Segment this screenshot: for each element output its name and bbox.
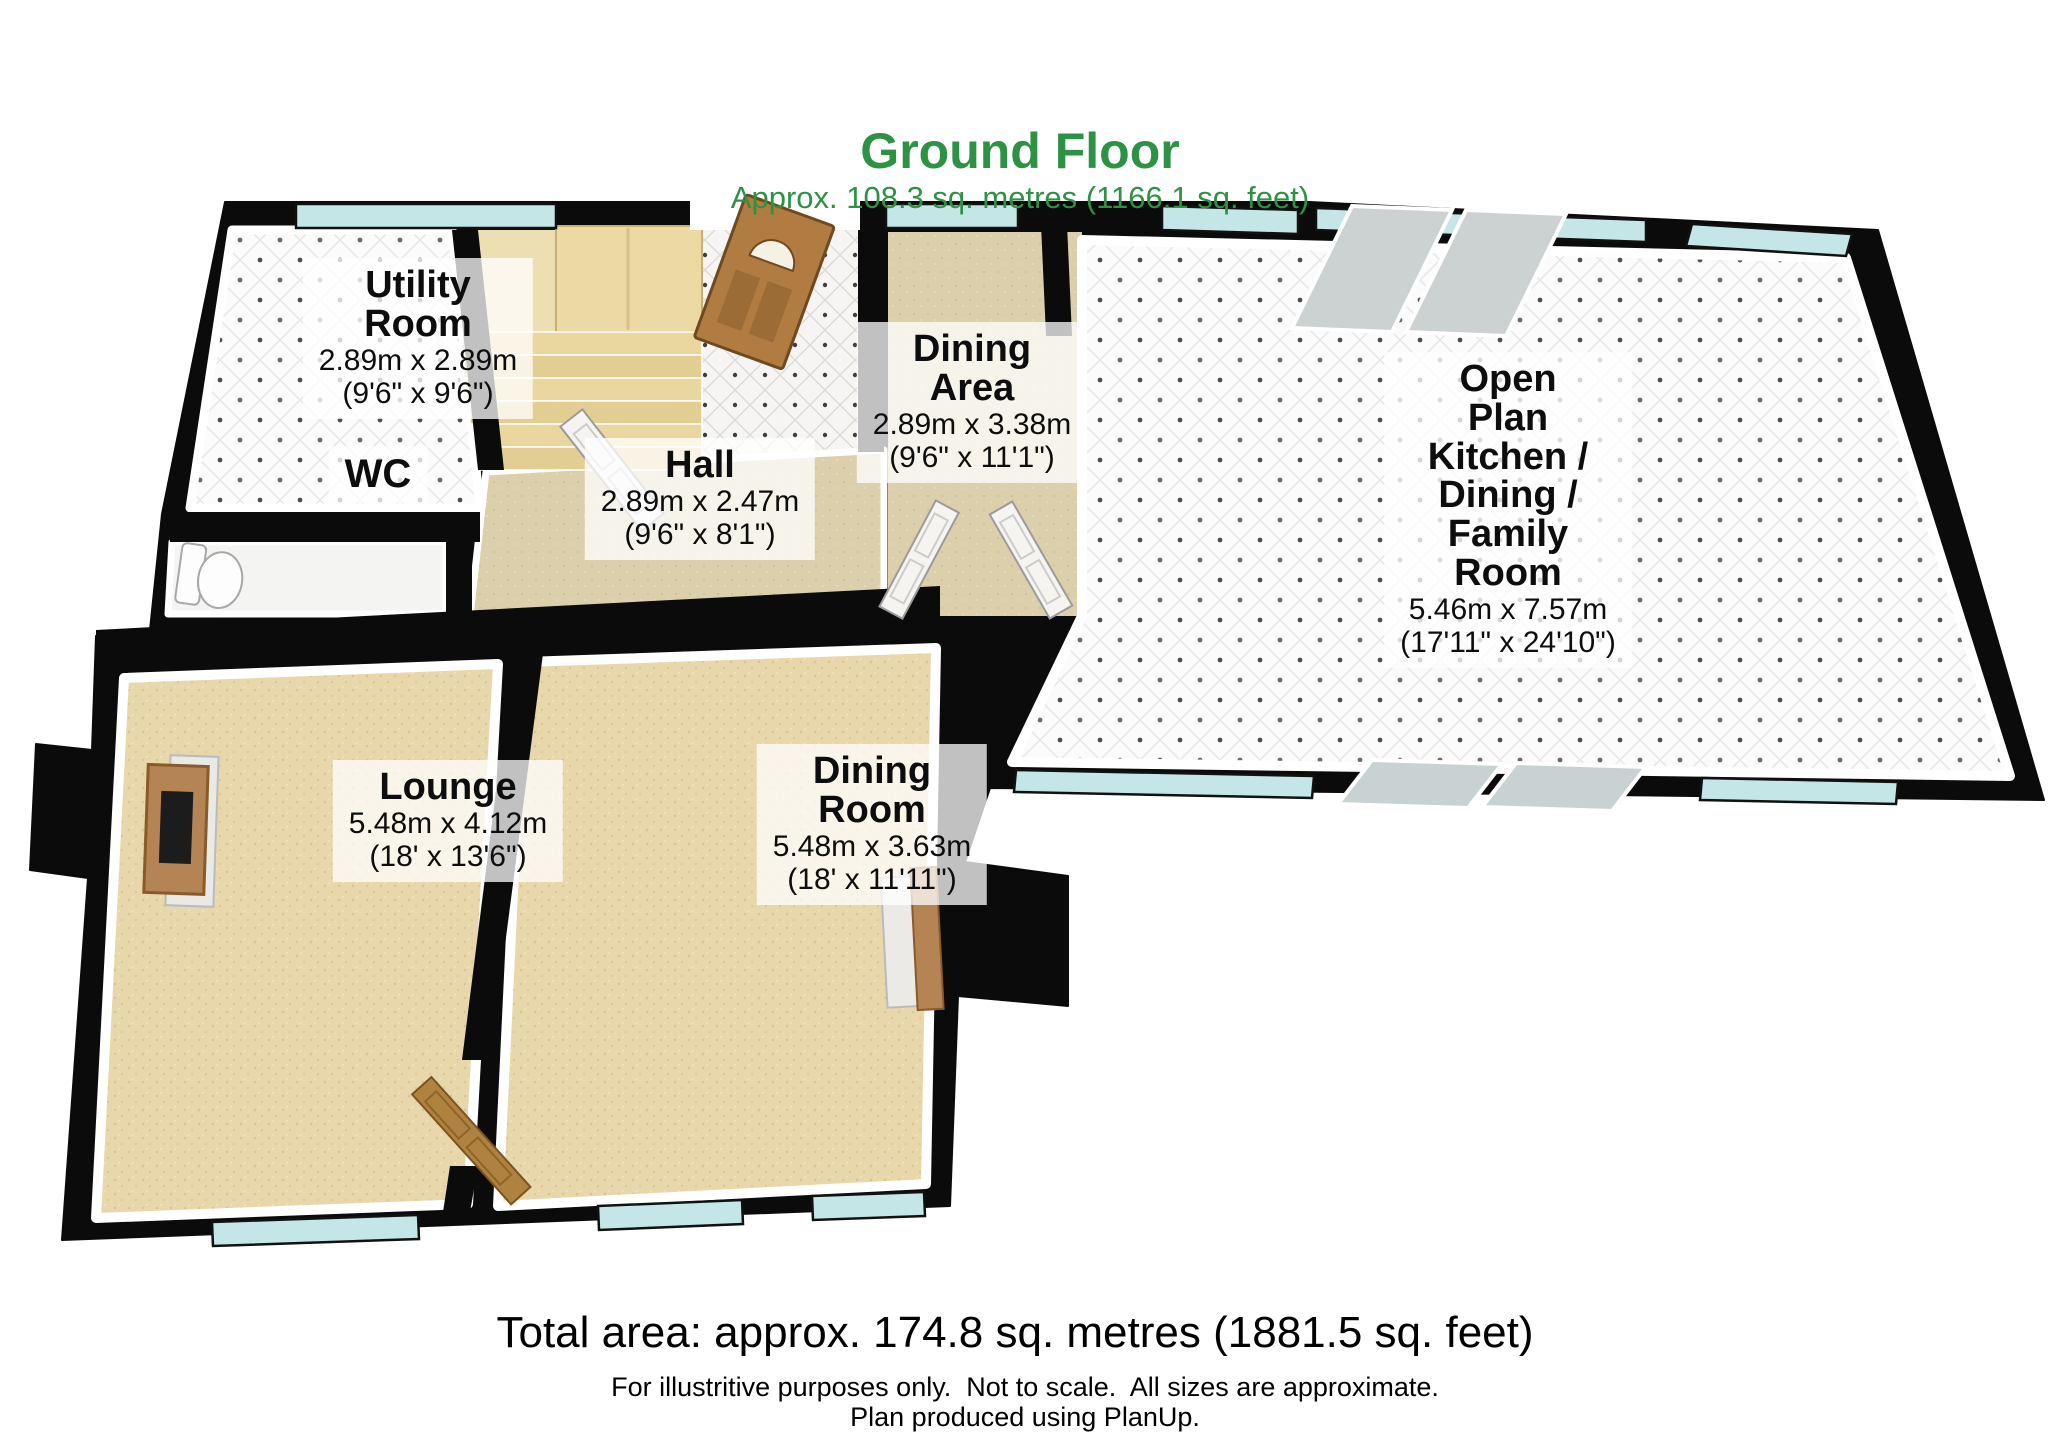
lounge-fireplace	[143, 754, 218, 906]
floorplan-graphic	[0, 0, 2048, 1441]
lounge-floor	[96, 664, 498, 1218]
window-utility-top	[296, 204, 556, 228]
wall-hall-right	[858, 230, 884, 452]
dining-room-floor	[498, 648, 936, 1206]
wall-wc-right	[446, 512, 472, 616]
floorplan-page: Ground Floor Approx. 108.3 sq. metres (1…	[0, 0, 2048, 1441]
window-dining-room-bottom-1	[598, 1200, 743, 1230]
utility-floor	[190, 230, 480, 508]
window-dining-area-2	[1162, 206, 1298, 234]
wall-utility-wc	[166, 512, 480, 542]
window-kitchen-bottom-1	[1014, 770, 1314, 798]
window-kitchen-bottom-2	[1700, 778, 1898, 804]
window-dining-area-1	[886, 204, 1018, 228]
window-dining-room-bottom-2	[812, 1192, 925, 1220]
hall-floor	[470, 450, 884, 616]
dining-room-fireplace	[880, 867, 943, 1012]
